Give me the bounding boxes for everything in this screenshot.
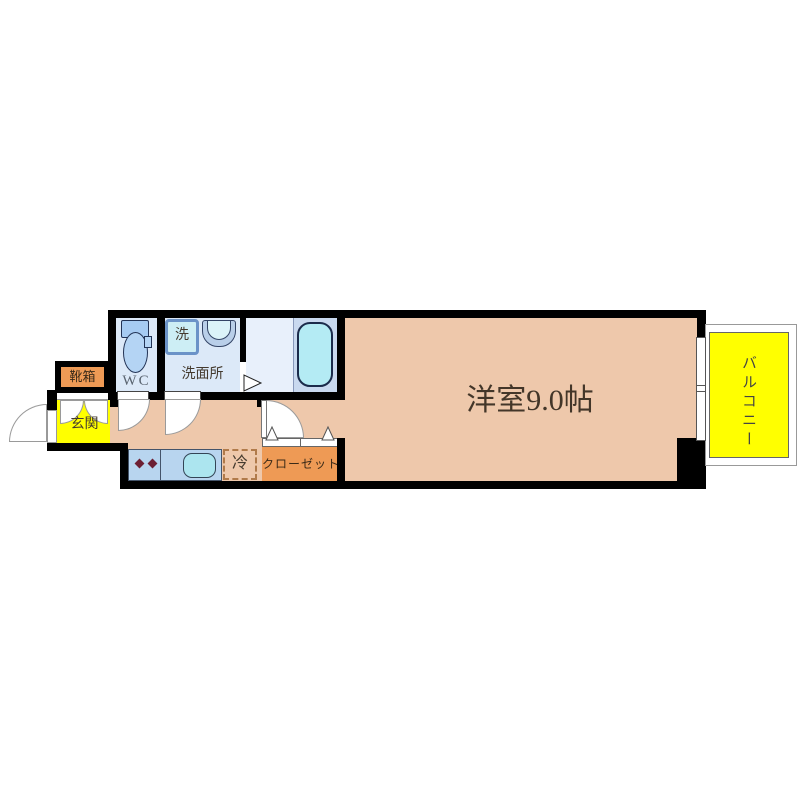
closet-right-wall — [337, 438, 345, 489]
main-room-label: 洋室9.0帖 — [400, 384, 660, 417]
toilet-washroom-wall — [157, 318, 165, 392]
bathtub-icon — [297, 322, 333, 387]
kitchen-sink-icon — [183, 453, 216, 478]
floor-plan: 冷 クローゼット 靴箱 洗 — [0, 0, 800, 800]
toilet-label: WC — [116, 373, 157, 390]
refrigerator-label: 冷 — [223, 455, 257, 473]
shoe-box-label: 靴箱 — [55, 370, 110, 384]
shoe-box-front-strip — [57, 393, 109, 400]
bath-right-wall — [337, 310, 345, 400]
entrance-left-wall — [47, 390, 57, 411]
entrance-bottom-wall — [47, 443, 128, 451]
entrance-label: 玄関 — [57, 417, 112, 432]
front-door-swing-icon — [9, 404, 47, 442]
hall-door-leaf — [261, 400, 267, 438]
top-wall — [108, 310, 706, 318]
toilet-flush-handle-icon — [144, 336, 152, 348]
sliding-window-icon — [696, 337, 706, 441]
sliding-window-tick-1 — [696, 385, 706, 386]
closet-label: クローゼット — [262, 458, 337, 471]
washing-machine-label: 洗 — [165, 328, 199, 343]
washroom-bath-wall — [240, 318, 246, 362]
washroom-label: 洗面所 — [165, 367, 240, 382]
toilet-left-wall — [108, 310, 116, 400]
closet-door-track-divider — [300, 438, 301, 447]
bottom-wall — [120, 481, 706, 489]
front-doorway — [47, 410, 57, 443]
bath-washing-area-floor — [246, 318, 293, 392]
balcony-label: バルコニー — [736, 352, 756, 452]
kitchen-counter-divider — [160, 449, 161, 481]
sliding-window-tick-2 — [696, 391, 706, 392]
